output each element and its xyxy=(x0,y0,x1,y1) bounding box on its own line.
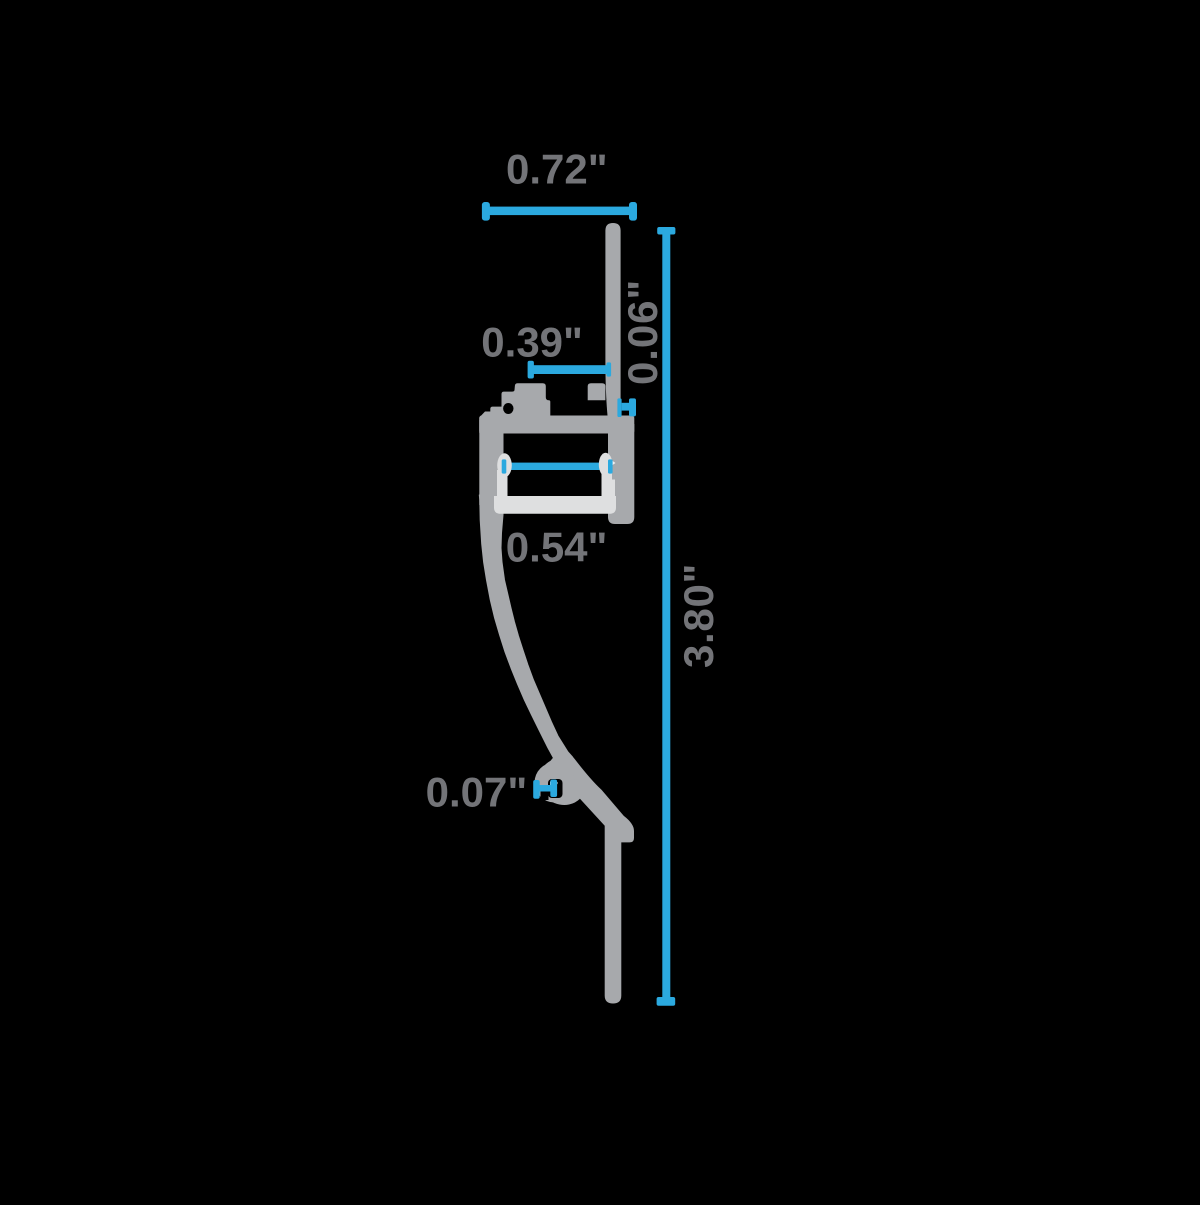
svg-text:3.80": 3.80" xyxy=(675,563,722,668)
svg-text:0.07": 0.07" xyxy=(426,769,528,816)
svg-text:0.06": 0.06" xyxy=(619,279,666,385)
svg-text:0.39": 0.39" xyxy=(481,319,583,366)
svg-text:0.54": 0.54" xyxy=(506,524,608,571)
svg-text:0.72": 0.72" xyxy=(506,146,608,193)
